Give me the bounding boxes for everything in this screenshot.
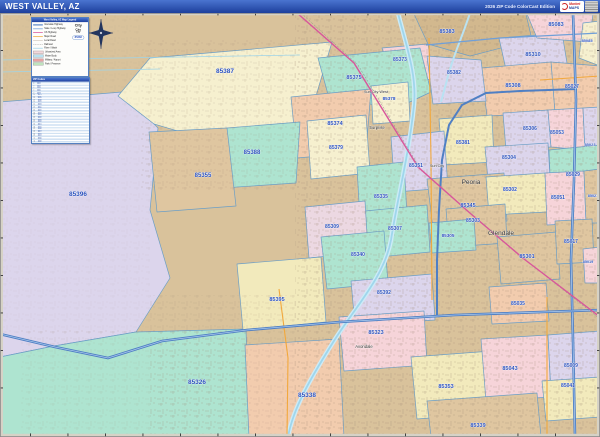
zip-label-85335: 85335	[374, 194, 388, 200]
edition-label: 2026 ZIP Code ColorCast Edition	[485, 4, 555, 9]
city-label-sun-city: Sun City	[430, 164, 444, 168]
legend-zip-code-sample: 85383	[72, 36, 84, 40]
city-label-glendale: Glendale	[488, 230, 514, 237]
zip-label-85035: 85035	[511, 301, 525, 307]
city-label-peoria: Peoria	[462, 179, 481, 186]
zip-label-85308: 85308	[505, 83, 520, 89]
zip-label-85302: 85302	[503, 187, 517, 193]
marketmaps-logo: Market MAPS	[560, 1, 598, 12]
zip-label-85351: 85351	[409, 163, 423, 169]
zip-label-85383: 85383	[439, 29, 454, 35]
zip-label-85043: 85043	[502, 366, 517, 372]
zip-label-85021: 85021	[588, 194, 599, 198]
zip-label-85382: 85382	[447, 70, 461, 76]
zip-label-85323: 85323	[368, 330, 383, 336]
city-label-sun-city-west: Sun City West	[364, 90, 389, 94]
zip-label-85017: 85017	[564, 239, 578, 245]
zip-code-table: ZIP Codes 185009285017385019485021585023…	[31, 77, 90, 144]
zip-label-85339: 85339	[470, 423, 485, 429]
zip-label-85303: 85303	[466, 218, 480, 224]
zip-label-85305: 85305	[442, 233, 455, 238]
zip-label-85392: 85392	[377, 290, 391, 296]
zip-label-85378: 85378	[383, 96, 396, 101]
zip-label-85353: 85353	[438, 384, 453, 390]
zip-label-85041: 85041	[561, 383, 575, 389]
zip-label-85381: 85381	[456, 140, 470, 146]
zip-table-rows: 1850092850173850194850215850236850277850…	[32, 82, 89, 144]
zip-label-85375: 85375	[346, 75, 361, 81]
zip-label-85373: 85373	[393, 57, 407, 63]
zip-label-85309: 85309	[325, 224, 339, 230]
zip-label-85304: 85304	[502, 155, 516, 161]
legend-item: Park / Preserve	[33, 62, 68, 66]
zip-label-85310: 85310	[525, 52, 540, 58]
zip-label-85355: 85355	[195, 173, 212, 179]
zip-label-85023: 85023	[584, 142, 596, 147]
zip-label-85085: 85085	[581, 38, 593, 43]
legend-city-sample-small: City	[69, 31, 88, 33]
logo-info-box	[585, 1, 598, 12]
zip-label-85083: 85083	[548, 22, 563, 28]
street-texture	[0, 13, 600, 437]
zip-label-85301: 85301	[519, 254, 534, 260]
title-bar: WEST VALLEY, AZ 2026 ZIP Code ColorCast …	[0, 0, 600, 13]
map-legend: West Valley, AZ Map Legend Interstate Hi…	[31, 17, 89, 77]
zip-label-85345: 85345	[460, 203, 475, 209]
zip-label-85306: 85306	[523, 126, 537, 132]
zip-label-85009: 85009	[564, 363, 578, 369]
zip-label-85338: 85338	[298, 392, 316, 399]
zip-label-85029: 85029	[566, 172, 580, 178]
zip-label-85379: 85379	[329, 145, 343, 151]
map-canvas: 8538785383853738531085083850858537585382…	[0, 13, 600, 437]
zip-label-85388: 85388	[244, 150, 261, 156]
zip-label-85395: 85395	[269, 297, 284, 303]
logo-swoosh-icon	[561, 3, 568, 10]
map-title: WEST VALLEY, AZ	[0, 2, 80, 11]
zip-label-85019: 85019	[583, 260, 594, 264]
zip-label-85340: 85340	[351, 252, 365, 258]
map-poster: WEST VALLEY, AZ 2026 ZIP Code ColorCast …	[0, 0, 600, 437]
city-label-surprise: Surprise	[369, 125, 385, 130]
zip-label-85307: 85307	[388, 226, 402, 232]
zip-label-85396: 85396	[69, 191, 87, 198]
zip-label-85027: 85027	[565, 84, 579, 90]
zip-label-85326: 85326	[188, 379, 206, 386]
zip-label-85387: 85387	[216, 68, 234, 75]
zip-label-85051: 85051	[551, 195, 565, 201]
compass-rose-icon	[89, 19, 113, 49]
city-label-avondale: Avondale	[355, 344, 373, 349]
zip-label-85374: 85374	[327, 121, 343, 127]
zip-label-85053: 85053	[550, 130, 564, 136]
